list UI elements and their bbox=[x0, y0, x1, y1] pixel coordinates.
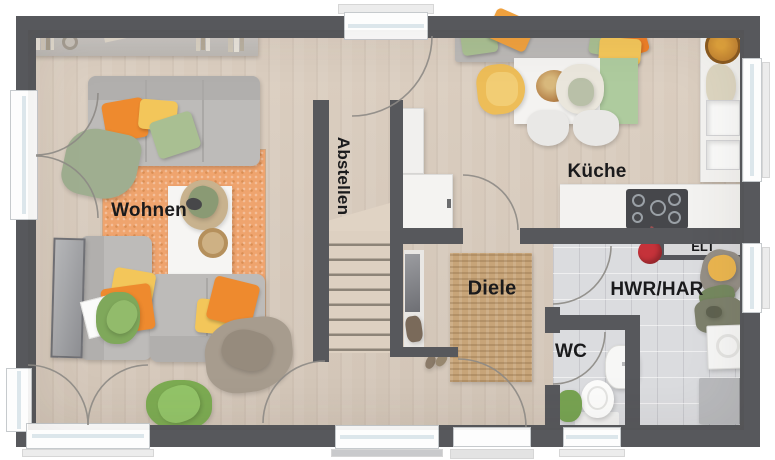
front-door-step bbox=[450, 449, 534, 459]
wall-kitchen-bottom bbox=[560, 228, 740, 244]
window-glass bbox=[340, 435, 434, 439]
window-glass bbox=[32, 434, 144, 438]
window-glass bbox=[22, 96, 26, 214]
sofa-top-back bbox=[88, 76, 260, 100]
woven-tray bbox=[198, 228, 228, 258]
window-bottom-hall bbox=[335, 425, 439, 449]
hall-cabinet-upper bbox=[402, 108, 424, 174]
window-glass bbox=[348, 24, 423, 28]
front-door bbox=[453, 427, 531, 447]
toilet-seat bbox=[587, 386, 608, 410]
window-glass bbox=[750, 247, 754, 310]
sink-basin bbox=[706, 100, 740, 136]
window-kitchen-right bbox=[742, 58, 762, 182]
wall-stair-left bbox=[313, 100, 329, 362]
burner bbox=[632, 194, 645, 207]
washer-door bbox=[716, 334, 740, 358]
mirror-niche bbox=[405, 254, 420, 312]
room-label-abstellen: Abstellen bbox=[333, 137, 353, 215]
sink-basin bbox=[706, 140, 740, 170]
room-label-hwr: HWR/HAR bbox=[610, 279, 703, 301]
floor-plan: ELT bbox=[0, 0, 775, 460]
hallway-jute-rug bbox=[450, 253, 532, 382]
window-sill-kitchen-right bbox=[762, 62, 770, 178]
closet-handle bbox=[447, 199, 451, 208]
wall-wc-right bbox=[625, 330, 640, 425]
room-label-wc: WC bbox=[555, 341, 587, 363]
window-glass bbox=[750, 64, 754, 176]
window-wc bbox=[563, 427, 621, 447]
window-sill-wc bbox=[559, 449, 625, 457]
room-label-wohnen: Wohnen bbox=[111, 200, 187, 222]
staircase bbox=[327, 231, 390, 353]
burner bbox=[650, 200, 666, 216]
terrace-french-door bbox=[26, 423, 150, 449]
chair-gray bbox=[527, 110, 569, 146]
leaning-mirror bbox=[50, 238, 85, 359]
window-sill-bottom-hall bbox=[331, 449, 443, 457]
wall-stub-stairs-bottom bbox=[390, 347, 458, 357]
wall-wc-top bbox=[545, 315, 640, 330]
sofa-cushion-gap bbox=[202, 80, 204, 162]
camo-bag-spot bbox=[706, 306, 722, 318]
window-top bbox=[344, 12, 428, 40]
terrace-step bbox=[22, 449, 154, 457]
door-sill-hwr-right bbox=[762, 247, 770, 309]
wall-hall-top-left bbox=[390, 228, 463, 244]
window-glass bbox=[17, 371, 21, 428]
chair-yellow-seat bbox=[486, 72, 518, 106]
burner bbox=[632, 212, 643, 223]
table-flowers-greens bbox=[568, 78, 594, 106]
door-hwr-right bbox=[742, 243, 762, 313]
hall-closet bbox=[401, 174, 453, 232]
wall-hall-right-lower bbox=[545, 385, 560, 425]
burner bbox=[668, 211, 681, 224]
window-glass bbox=[566, 435, 618, 439]
burner bbox=[668, 193, 681, 206]
room-label-kueche: Küche bbox=[567, 161, 626, 183]
wall-hall-top-right bbox=[520, 228, 560, 244]
chair-gray bbox=[573, 110, 619, 146]
window-left-french-door bbox=[10, 90, 38, 220]
room-label-diele: Diele bbox=[468, 278, 517, 301]
